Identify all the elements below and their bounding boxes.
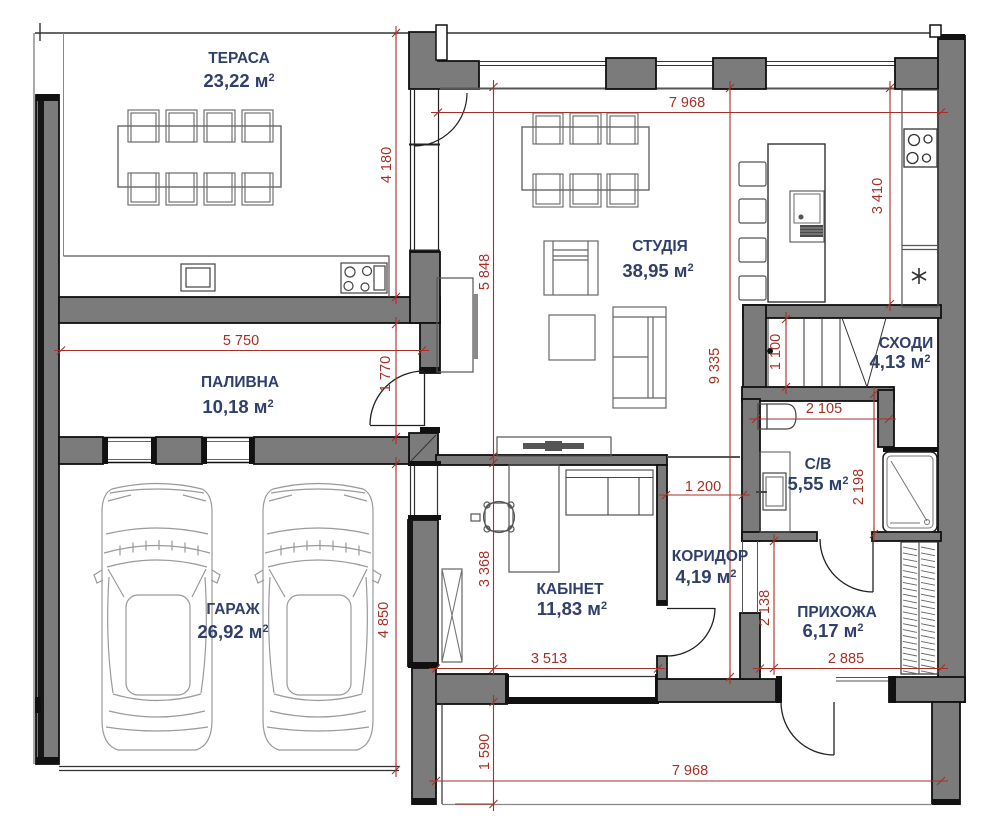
svg-text:7 968: 7 968 bbox=[672, 763, 708, 779]
svg-text:7 968: 7 968 bbox=[669, 95, 705, 111]
svg-text:6,17 м2: 6,17 м2 bbox=[803, 620, 864, 641]
svg-text:2 198: 2 198 bbox=[851, 469, 867, 505]
svg-text:2 885: 2 885 bbox=[828, 651, 864, 667]
svg-text:ГАРАЖ: ГАРАЖ bbox=[206, 601, 260, 618]
svg-text:23,22 м2: 23,22 м2 bbox=[203, 70, 274, 91]
svg-text:11,83 м2: 11,83 м2 bbox=[537, 598, 607, 619]
svg-text:38,95 м2: 38,95 м2 bbox=[622, 260, 693, 281]
svg-text:9 335: 9 335 bbox=[707, 348, 723, 384]
svg-text:3 368: 3 368 bbox=[477, 551, 493, 587]
svg-text:5,55 м2: 5,55 м2 bbox=[788, 473, 849, 494]
svg-text:5 848: 5 848 bbox=[477, 254, 493, 290]
svg-text:4 850: 4 850 bbox=[376, 602, 392, 638]
svg-text:2 138: 2 138 bbox=[757, 590, 773, 626]
svg-text:ТЕРАСА: ТЕРАСА bbox=[208, 50, 270, 67]
svg-text:КАБІНЕТ: КАБІНЕТ bbox=[536, 581, 604, 598]
svg-text:СХОДИ: СХОДИ bbox=[879, 335, 934, 352]
svg-text:1 200: 1 200 bbox=[685, 479, 721, 495]
svg-text:1 590: 1 590 bbox=[477, 734, 493, 770]
svg-text:10,18 м2: 10,18 м2 bbox=[202, 396, 273, 417]
svg-text:ПАЛИВНА: ПАЛИВНА bbox=[201, 374, 279, 391]
svg-text:4,13 м2: 4,13 м2 bbox=[870, 351, 931, 372]
svg-text:26,92 м2: 26,92 м2 bbox=[197, 621, 268, 642]
svg-text:СТУДІЯ: СТУДІЯ bbox=[632, 238, 688, 255]
svg-text:1 100: 1 100 bbox=[768, 334, 784, 370]
svg-text:4 180: 4 180 bbox=[379, 147, 395, 183]
svg-text:5 750: 5 750 bbox=[223, 333, 259, 349]
svg-text:3 513: 3 513 bbox=[531, 651, 567, 667]
svg-text:ПРИХОЖА: ПРИХОЖА bbox=[797, 604, 877, 621]
svg-text:С/В: С/В bbox=[805, 456, 832, 473]
svg-text:КОРИДОР: КОРИДОР bbox=[672, 548, 748, 565]
svg-text:1 770: 1 770 bbox=[378, 356, 394, 392]
svg-text:2 105: 2 105 bbox=[806, 401, 842, 417]
svg-text:4,19 м2: 4,19 м2 bbox=[676, 566, 737, 587]
svg-text:3 410: 3 410 bbox=[870, 178, 886, 214]
